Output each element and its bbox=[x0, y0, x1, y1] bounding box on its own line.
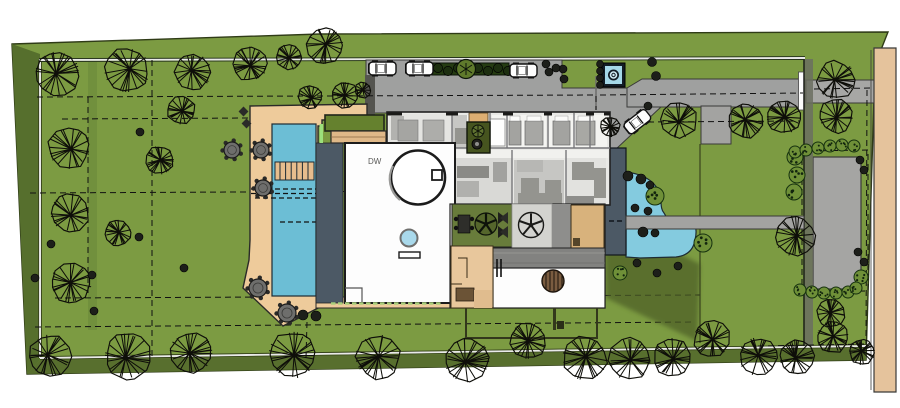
svg-text:DW: DW bbox=[368, 157, 382, 166]
